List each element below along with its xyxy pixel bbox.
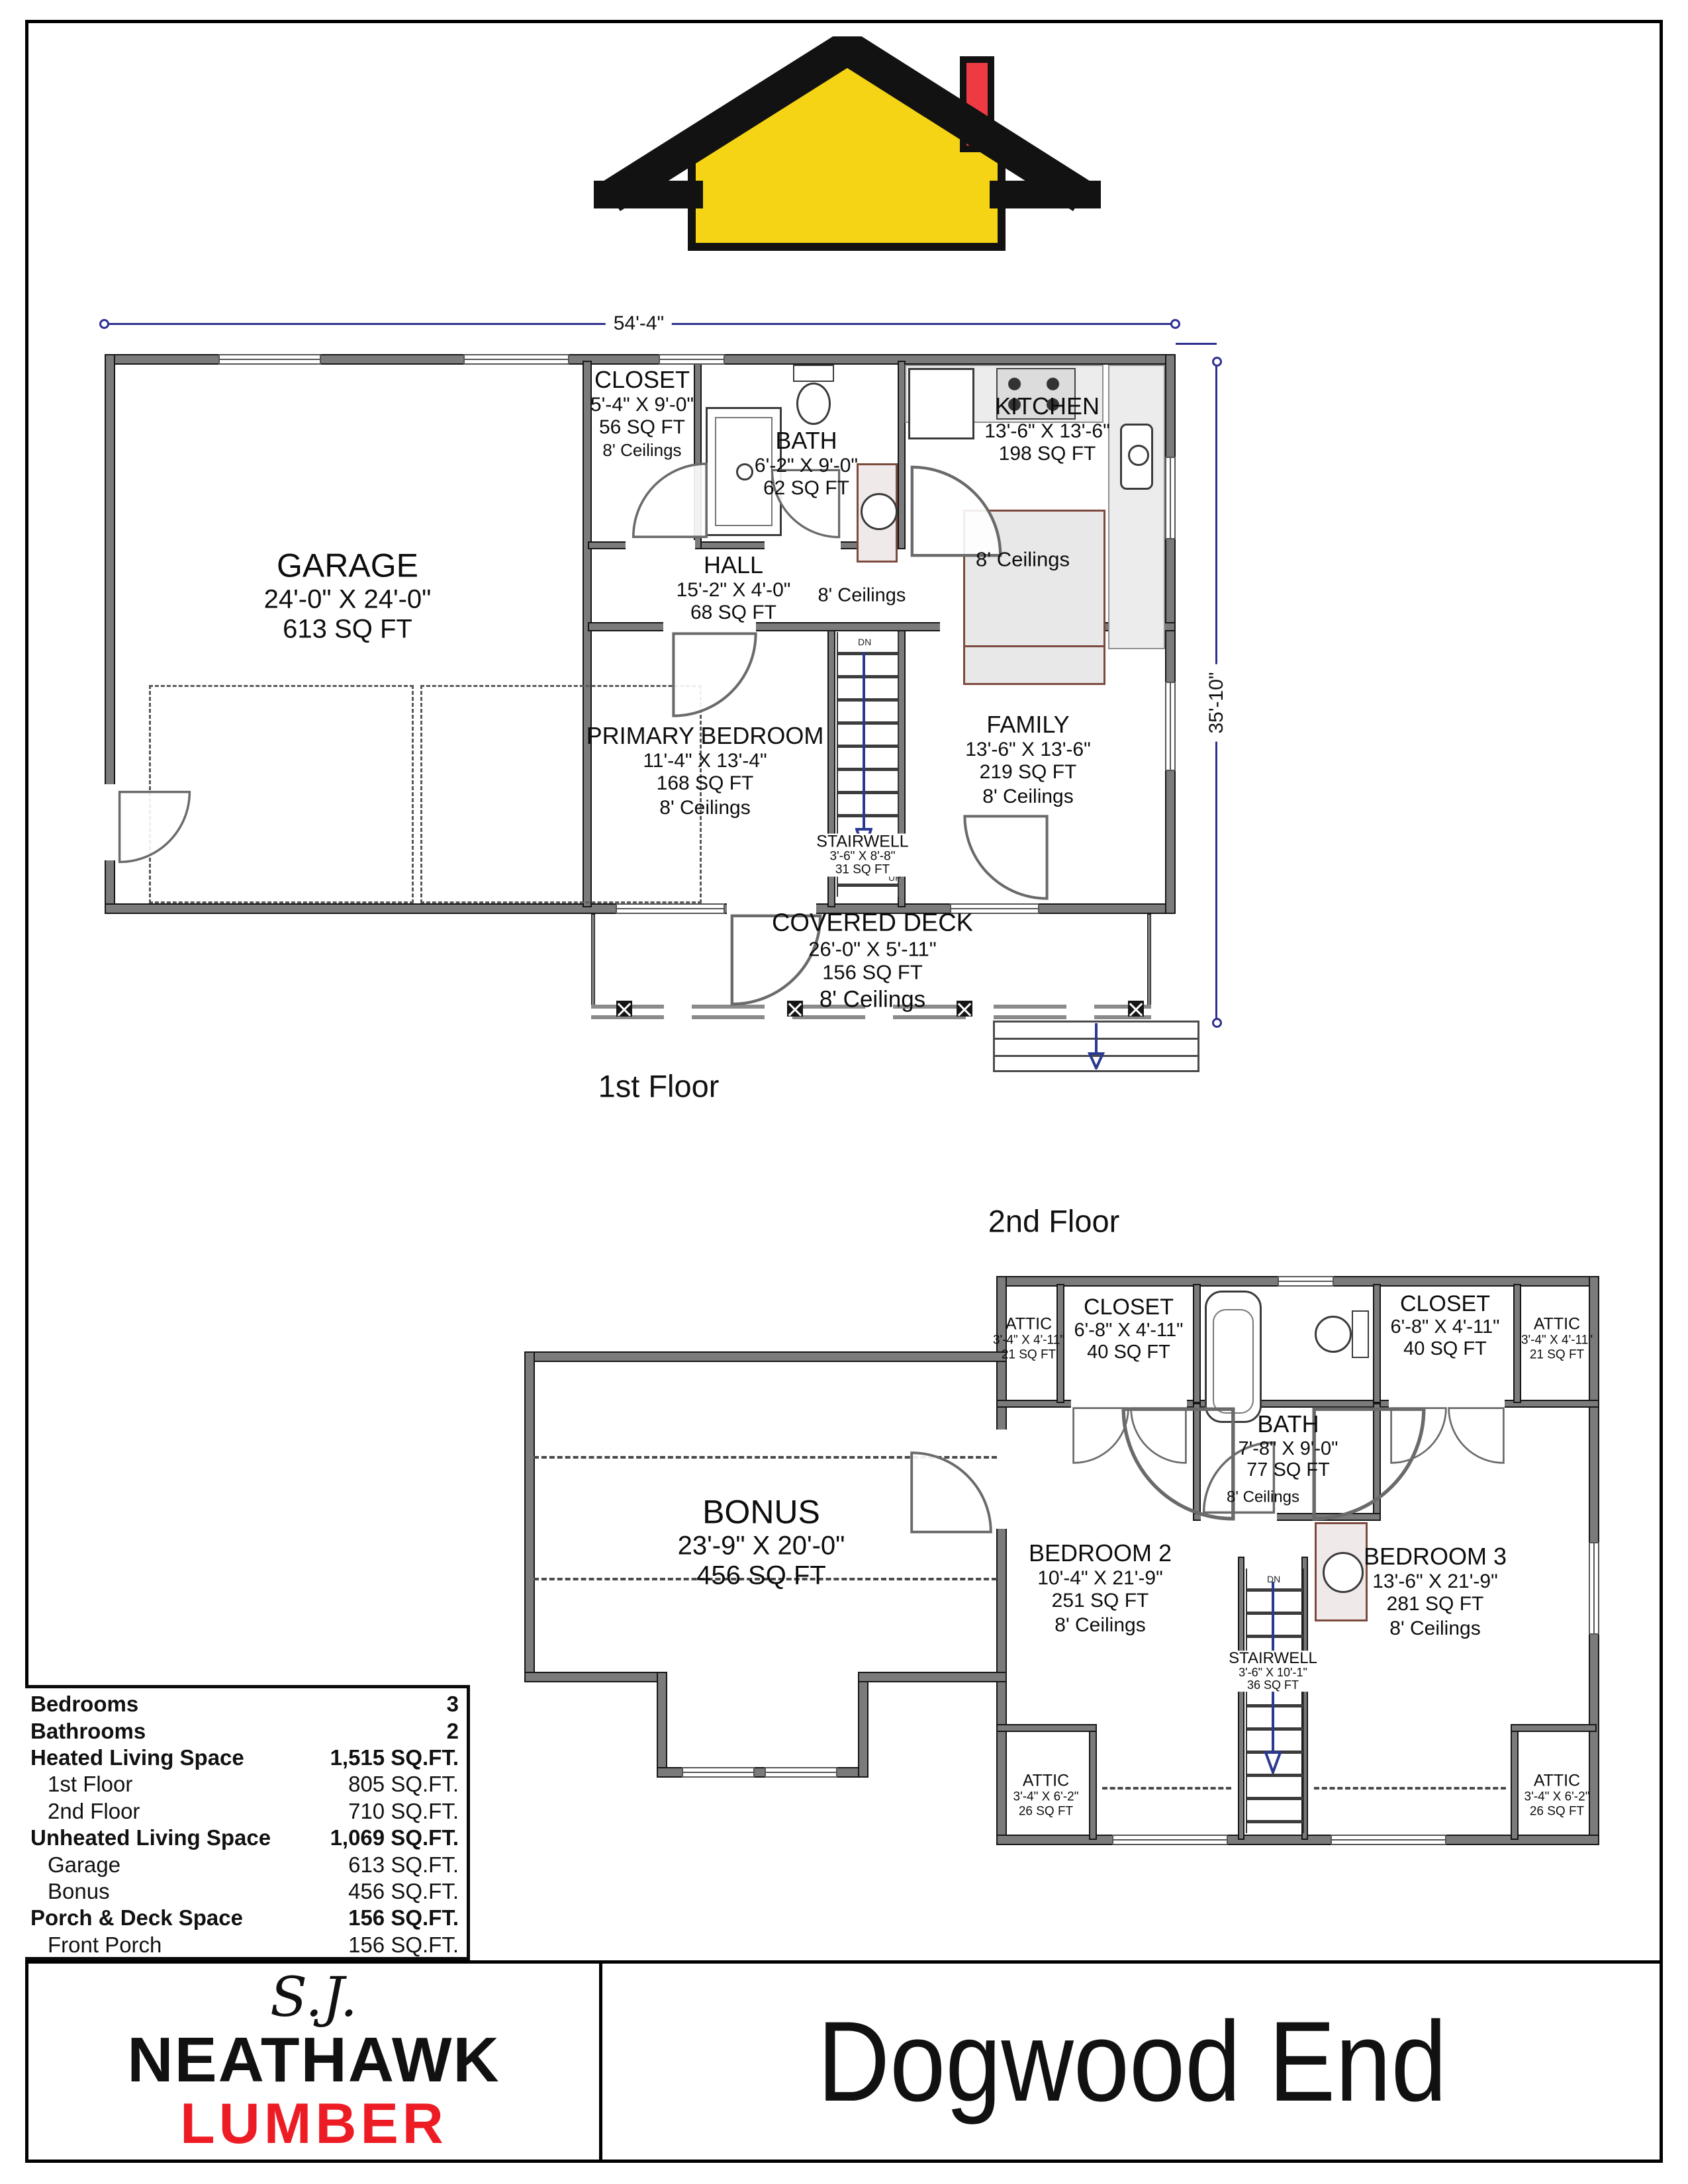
sink <box>1323 1552 1364 1593</box>
door-opening <box>765 540 841 551</box>
deck-rail <box>1147 914 1151 1007</box>
wall <box>1511 1724 1519 1840</box>
brand-initials: S.J. <box>270 1971 357 2025</box>
room-label-closet: CLOSET 5'-4" X 9'-0" 56 SQ FT 8' Ceiling… <box>590 367 694 461</box>
wall <box>1513 1284 1521 1403</box>
dimension-marker <box>1212 1018 1222 1028</box>
window <box>765 1767 837 1778</box>
company-logo: S.J. NEATHAWK LUMBER <box>28 1963 600 2160</box>
shower-drain <box>736 463 753 480</box>
overall-depth-dimension: 35'-10" <box>1205 664 1228 741</box>
refrigerator <box>908 368 974 439</box>
hall-ceilings-label: 8' Ceilings <box>818 585 906 607</box>
wall <box>1238 1557 1244 1840</box>
knee-wall-dashed <box>1314 1787 1506 1790</box>
wall <box>858 1672 868 1778</box>
window <box>682 1767 755 1778</box>
summary-table: Bedrooms3 Bathrooms2 Heated Living Space… <box>25 1685 470 1960</box>
door-opening <box>626 540 695 551</box>
table-row: Bonus456 SQ.FT. <box>30 1878 459 1905</box>
window <box>1112 1835 1228 1845</box>
window <box>616 903 725 914</box>
room-label-hall: HALL 15'-2" X 4'-0" 68 SQ FT <box>677 552 791 623</box>
room-label-bonus: BONUS 23'-9" X 20'-0" 456 SQ FT <box>678 1494 845 1591</box>
floor-plan-sheet: 54'-4" 35'-10" DN UP <box>0 0 1688 2184</box>
title-block: Dogwood End <box>602 1963 1662 2160</box>
steps-arrow <box>1088 1023 1105 1069</box>
wall <box>1165 354 1176 914</box>
window <box>463 354 569 365</box>
room-label-bath2: BATH 7'-8" X 9'-0" 77 SQ FT <box>1239 1411 1338 1481</box>
window <box>218 354 321 365</box>
window <box>1165 682 1176 771</box>
room-label-attic-br: ATTIC 3'-4" X 6'-2" 26 SQ FT <box>1524 1771 1590 1818</box>
kitchen-ceilings-label: 8' Ceilings <box>976 547 1070 570</box>
house-logo <box>592 36 1102 258</box>
deck-post <box>616 1001 632 1017</box>
room-label-closet-left: CLOSET 6'-8" X 4'-11" 40 SQ FT <box>1074 1295 1184 1363</box>
stair-direction-arrow <box>855 652 872 850</box>
deck-rail <box>591 1015 1151 1019</box>
deck-post <box>1128 1001 1144 1017</box>
room-label-bedroom2: BEDROOM 2 10'-4" X 21'-9" 251 SQ FT 8' C… <box>1029 1540 1172 1637</box>
door-arc <box>670 630 759 719</box>
wall <box>996 1724 1097 1732</box>
room-label-bedroom3: BEDROOM 3 13'-6" X 21'-9" 281 SQ FT 8' C… <box>1364 1543 1507 1640</box>
dimension-connector <box>1176 343 1217 345</box>
toilet-bowl <box>796 383 831 425</box>
roof-eave-right <box>990 181 1101 208</box>
bathtub-inner <box>1213 1309 1254 1414</box>
dimension-marker <box>1170 319 1180 329</box>
room-label-stairwell2: STAIRWELL 3'-6" X 10'-1" 36 SQ FT <box>1229 1651 1317 1692</box>
wall <box>524 1672 666 1682</box>
island-edge <box>965 645 1103 647</box>
floor2-title: 2nd Floor <box>988 1203 1120 1240</box>
overall-width-dimension: 54'-4" <box>606 312 672 335</box>
room-label-covered-deck: COVERED DECK 26'-0" X 5'-11" 156 SQ FT 8… <box>772 909 973 1013</box>
table-row: Bathrooms2 <box>30 1717 459 1744</box>
wall <box>996 1835 1599 1845</box>
door-arc <box>1119 1404 1238 1524</box>
table-row: 2nd Floor710 SQ.FT. <box>30 1798 459 1825</box>
door-arc <box>117 789 193 865</box>
door-arc <box>908 463 1004 559</box>
table-row: Front Porch156 SQ.FT. <box>30 1932 459 1958</box>
window <box>659 354 725 365</box>
room-label-bath: BATH 6'-2" X 9'-0" 62 SQ FT <box>755 428 858 499</box>
kitchen-counter <box>1108 365 1165 649</box>
window <box>1165 457 1176 539</box>
room-label-attic-tl: ATTIC 3'-4" X 4'-11" 21 SQ FT <box>993 1314 1064 1361</box>
table-row: 1st Floor805 SQ.FT. <box>30 1771 459 1797</box>
wall <box>524 1351 1007 1362</box>
door-arc <box>630 461 710 540</box>
plan-title: Dogwood End <box>818 1996 1447 2127</box>
room-label-attic-tr: ATTIC 3'-4" X 4'-11" 21 SQ FT <box>1521 1314 1593 1361</box>
room-label-attic-bl: ATTIC 3'-4" X 6'-2" 26 SQ FT <box>1013 1771 1079 1818</box>
house-body <box>692 56 1002 247</box>
wall <box>1089 1724 1097 1840</box>
door-arc <box>961 813 1051 902</box>
door-opening <box>995 1430 1008 1529</box>
table-row: Garage613 SQ.FT. <box>30 1851 459 1878</box>
table-row: Heated Living Space1,515 SQ.FT. <box>30 1745 459 1771</box>
room-label-family: FAMILY 13'-6" X 13'-6" 219 SQ FT 8' Ceil… <box>965 711 1091 808</box>
roof-eave-left <box>594 181 703 208</box>
sink <box>861 493 898 530</box>
dimension-marker <box>99 319 109 329</box>
table-row: Bedrooms3 <box>30 1691 459 1717</box>
window <box>1589 1542 1599 1635</box>
room-label-primary-bedroom: PRIMARY BEDROOM 11'-4" X 13'-4" 168 SQ F… <box>586 723 824 819</box>
room-label-stairwell: STAIRWELL 3'-6" X 8'-8" 31 SQ FT <box>816 834 908 877</box>
table-row: Porch & Deck Space156 SQ.FT. <box>30 1905 459 1931</box>
table-row: Unheated Living Space1,069 SQ.FT. <box>30 1825 459 1851</box>
wall <box>858 1672 1007 1682</box>
room-label-garage: GARAGE 24'-0" X 24'-0" 613 SQ FT <box>264 547 432 645</box>
wall <box>1193 1284 1201 1403</box>
dimension-marker <box>1212 357 1222 367</box>
toilet-tank <box>1352 1310 1369 1358</box>
brand-subname: LUMBER <box>180 2095 447 2152</box>
window <box>1331 1835 1446 1845</box>
wall <box>524 1351 535 1682</box>
bath2-ceilings-label: 8' Ceilings <box>1227 1488 1299 1506</box>
door-opening <box>103 784 117 860</box>
knee-wall-dashed <box>1102 1787 1231 1790</box>
stair-dn-label: DN <box>1267 1574 1280 1584</box>
wall <box>1511 1724 1597 1732</box>
wall <box>657 1672 667 1778</box>
stair-dn-label: DN <box>858 637 871 647</box>
toilet-bowl <box>1315 1316 1352 1353</box>
floor1-title: 1st Floor <box>598 1068 720 1105</box>
toilet-tank <box>793 365 834 382</box>
window <box>1278 1276 1334 1287</box>
wall <box>1373 1284 1381 1403</box>
room-label-kitchen: KITCHEN 13'-6" X 13'-6" 198 SQ FT <box>984 393 1110 465</box>
room-label-closet-right: CLOSET 6'-8" X 4'-11" 40 SQ FT <box>1391 1291 1500 1360</box>
door-arc <box>908 1449 994 1535</box>
door-arc <box>1446 1406 1506 1465</box>
brand-name: NEATHAWK <box>127 2025 500 2095</box>
deck-rail <box>591 914 595 1007</box>
kitchen-sink-drain <box>1128 445 1149 466</box>
